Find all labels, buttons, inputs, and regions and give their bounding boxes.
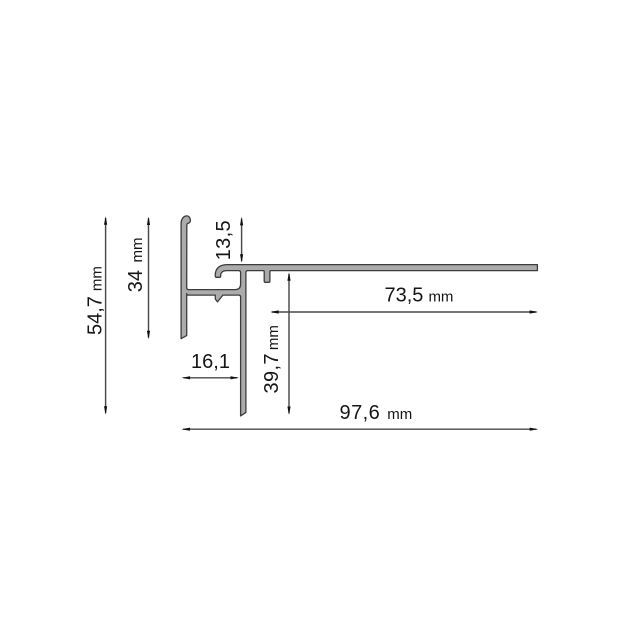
svg-text:16,1: 16,1 [191, 351, 230, 373]
svg-text:73,5mm: 73,5mm [385, 284, 454, 306]
svg-text:39,7mm: 39,7mm [261, 325, 283, 393]
svg-text:54,7mm: 54,7mm [85, 266, 107, 335]
svg-text:13,5: 13,5 [213, 220, 235, 260]
svg-text:97,6mm: 97,6mm [340, 402, 413, 424]
